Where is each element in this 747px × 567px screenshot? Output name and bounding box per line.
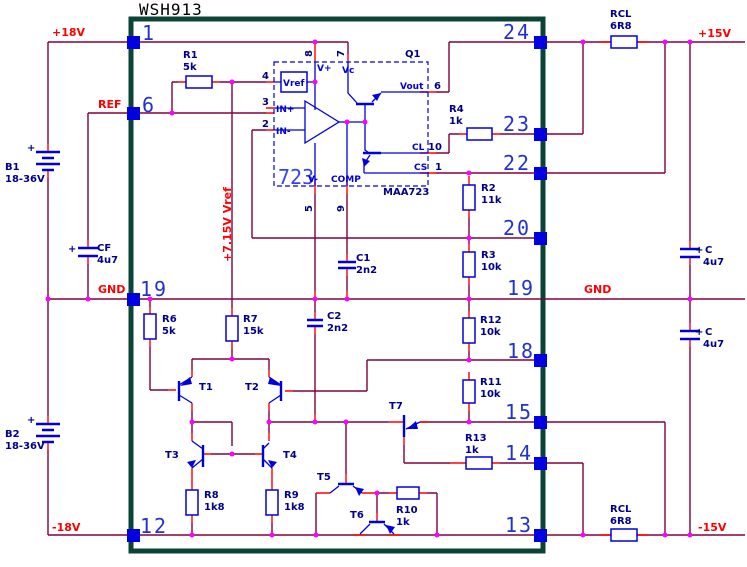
value-c-bottom: 4u7 <box>703 339 724 350</box>
schematic-page: WSH913 +18V REF GND -18V +15V -15V GND +… <box>0 0 747 567</box>
pin-number-19-left: 19 <box>140 277 168 301</box>
value-r12: 10k <box>480 327 501 338</box>
label-t7: T7 <box>389 401 403 412</box>
value-c2: 2n2 <box>327 323 348 334</box>
ic-internal-wires <box>179 62 428 534</box>
resistor-r7 <box>226 316 238 341</box>
ic-pin-8: 8 <box>304 50 315 57</box>
pin-number-23: 23 <box>503 112 531 136</box>
value-r10: 1k <box>396 517 410 528</box>
label-r3: R3 <box>481 250 496 261</box>
label-t4: T4 <box>283 450 297 461</box>
ic-label-comp: COMP <box>331 175 361 185</box>
circuit-schematic: WSH913 +18V REF GND -18V +15V -15V GND +… <box>0 0 747 567</box>
pin-number-18: 18 <box>507 339 535 363</box>
label-r10: R10 <box>396 505 418 516</box>
ic-pin-9: 9 <box>336 205 347 212</box>
value-r3: 10k <box>481 262 502 273</box>
value-r6: 5k <box>162 326 176 337</box>
value-r7: 15k <box>243 326 264 337</box>
pin-square-18 <box>534 354 547 367</box>
value-c-top: 4u7 <box>703 257 724 268</box>
label-t6: T6 <box>350 510 364 521</box>
resistor-r6 <box>144 314 156 339</box>
polarity-c-bottom: + <box>695 327 703 338</box>
transistor-arrows <box>180 93 418 534</box>
label-maa723: MAA723 <box>383 187 429 198</box>
label-r2: R2 <box>481 183 496 194</box>
label-cf: CF <box>97 243 111 254</box>
pin-square-23 <box>534 128 547 141</box>
label-r7: R7 <box>243 314 258 325</box>
resistor-r3 <box>463 252 475 277</box>
label-q1: Q1 <box>405 49 421 60</box>
ic-pin-4: 4 <box>262 71 269 82</box>
ic-pin-2: 2 <box>262 119 269 130</box>
value-c1: 2n2 <box>356 265 377 276</box>
value-rcl-bottom: 6R8 <box>610 516 632 527</box>
ic-pin-10: 10 <box>428 142 442 153</box>
pin-number-12: 12 <box>140 514 168 538</box>
opamp-symbol <box>305 101 339 143</box>
ic-label-vplus: V+ <box>317 64 332 74</box>
label-c-top: C <box>705 245 712 256</box>
net-label-m18v: -18V <box>52 521 81 534</box>
value-r2: 11k <box>481 195 502 206</box>
polarity-b2: + <box>27 415 35 426</box>
resistor-r11 <box>463 380 475 403</box>
label-r12: R12 <box>480 315 502 326</box>
pin-number-19-right: 19 <box>507 276 535 300</box>
ic-pin-1: 1 <box>435 162 442 173</box>
pin-square-22 <box>534 167 547 180</box>
label-r6: R6 <box>162 314 177 325</box>
resistor-r10 <box>397 487 419 499</box>
net-label-m15v: -15V <box>698 521 727 534</box>
label-t1: T1 <box>199 382 213 393</box>
value-b1: 18-36V <box>5 174 45 185</box>
net-label-p18v: +18V <box>52 26 86 39</box>
polarity-cf: + <box>68 244 76 255</box>
pin-square-20 <box>534 232 547 245</box>
resistor-r8 <box>186 490 198 515</box>
pin-number-20: 20 <box>503 216 531 240</box>
resistor-r12 <box>463 318 475 343</box>
pin-square-12 <box>127 529 140 542</box>
ic-label-vref: Vref <box>283 79 305 89</box>
ic-pin-6: 6 <box>434 81 441 92</box>
net-label-ref: REF <box>98 98 122 111</box>
pin-square-15 <box>534 416 547 429</box>
label-b2: B2 <box>5 429 20 440</box>
label-rcl-top: RCL <box>610 9 632 20</box>
value-r4: 1k <box>449 116 463 127</box>
label-t5: T5 <box>317 472 331 483</box>
polarity-c-top: + <box>695 245 703 256</box>
value-b2: 18-36V <box>5 441 45 452</box>
ic-pin-3: 3 <box>262 97 269 108</box>
pin-square-24 <box>534 36 547 49</box>
net-label-gnd-left: GND <box>98 283 125 296</box>
pin-square-6 <box>127 107 140 120</box>
ic-label-cl: CL <box>412 143 425 153</box>
label-r8: R8 <box>204 490 219 501</box>
label-r11: R11 <box>480 377 502 388</box>
net-label-gnd-right: GND <box>584 283 611 296</box>
resistor-r1 <box>186 76 212 88</box>
label-rcl-bottom: RCL <box>610 504 632 515</box>
pin-number-22: 22 <box>503 151 531 175</box>
label-c2: C2 <box>327 311 341 322</box>
resistor-rcl-top <box>611 36 637 48</box>
ic-label-cs: CS <box>414 163 427 173</box>
label-r4: R4 <box>449 104 464 115</box>
pin-number-6: 6 <box>142 93 156 117</box>
module-border <box>131 19 543 551</box>
symbol-bars <box>36 104 700 522</box>
resistor-r4 <box>467 128 492 140</box>
pin-square-13 <box>534 529 547 542</box>
pin-number-14: 14 <box>505 441 533 465</box>
ic-label-vc: Vc <box>342 66 354 76</box>
value-r9: 1k8 <box>284 502 305 513</box>
pin-square-1 <box>127 36 140 49</box>
pin-square-14 <box>534 457 547 470</box>
pin-number-15: 15 <box>505 400 533 424</box>
pin-number-13: 13 <box>505 513 533 537</box>
label-c-bottom: C <box>705 327 712 338</box>
label-t3: T3 <box>165 450 179 461</box>
pin-number-1: 1 <box>142 21 156 45</box>
label-t2: T2 <box>245 382 259 393</box>
resistor-bodies <box>144 36 637 541</box>
resistor-r13 <box>466 457 492 469</box>
value-r11: 10k <box>480 389 501 400</box>
polarity-b1: + <box>27 143 35 154</box>
label-c1: C1 <box>356 253 370 264</box>
label-b1: B1 <box>5 162 20 173</box>
net-label-p15v: +15V <box>698 27 732 40</box>
value-cf: 4u7 <box>97 255 118 266</box>
page-title: WSH913 <box>139 0 203 19</box>
value-r1: 5k <box>183 62 197 73</box>
value-r8: 1k8 <box>204 502 225 513</box>
net-label-vref-rail: +7.15V Vref <box>221 187 234 262</box>
ic-label-vout: Vout <box>400 82 424 92</box>
ic-label-vminus: V- <box>308 175 318 185</box>
resistor-rcl-bottom <box>611 529 637 541</box>
ic-pin-5: 5 <box>304 205 315 212</box>
ic-label-in-plus: IN+ <box>276 105 294 115</box>
value-r13: 1k <box>465 445 479 456</box>
ic-label-in-minus: IN- <box>276 127 291 137</box>
resistor-r2 <box>463 185 475 210</box>
pin-square-19-left <box>127 293 140 306</box>
label-r13: R13 <box>465 433 487 444</box>
label-r1: R1 <box>183 50 198 61</box>
value-rcl-top: 6R8 <box>610 21 632 32</box>
resistor-r9 <box>266 490 278 515</box>
pin-number-24: 24 <box>503 20 531 44</box>
ic-pin-7: 7 <box>336 50 347 57</box>
label-r9: R9 <box>284 490 299 501</box>
